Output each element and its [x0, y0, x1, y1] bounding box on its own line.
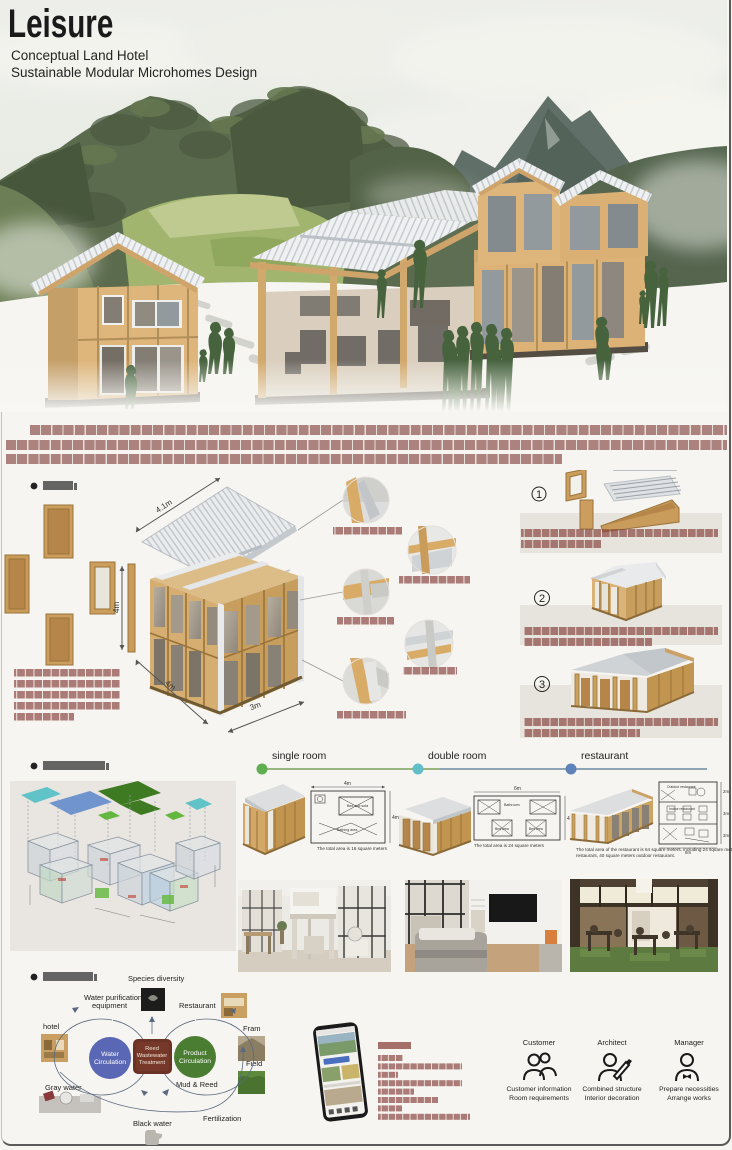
svg-text:Restaurant: Restaurant: [179, 1001, 217, 1010]
svg-text:The total area is 24 square me: The total area is 24 square meters: [474, 843, 545, 848]
svg-text:Room requirements: Room requirements: [509, 1095, 569, 1102]
svg-text:2: 2: [539, 593, 545, 605]
svg-text:Customer: Customer: [523, 1038, 556, 1047]
svg-text:double room: double room: [428, 750, 487, 762]
svg-text:restaurant, 40 square meters o: restaurant, 40 square meters outdoor res…: [576, 853, 675, 858]
svg-text:4m: 4m: [392, 815, 399, 821]
svg-text:3m: 3m: [723, 811, 729, 816]
svg-text:Species diversity: Species diversity: [128, 974, 185, 983]
svg-text:2m: 2m: [723, 789, 729, 794]
svg-text:equipment: equipment: [92, 1001, 128, 1010]
svg-text:Fram: Fram: [243, 1024, 261, 1033]
svg-text:Fertilization: Fertilization: [203, 1114, 241, 1123]
svg-text:single room: single room: [272, 750, 327, 762]
svg-text:Arrange works: Arrange works: [667, 1095, 711, 1102]
svg-text:hotel: hotel: [43, 1022, 60, 1031]
svg-text:Architect: Architect: [597, 1038, 627, 1047]
svg-text:Interior decoration: Interior decoration: [585, 1095, 640, 1102]
svg-text:6m: 6m: [514, 786, 521, 792]
svg-text:Bed area: Bed area: [495, 827, 509, 831]
svg-text:3: 3: [539, 679, 545, 691]
svg-text:Treatment: Treatment: [139, 1060, 166, 1066]
svg-text:Circulation: Circulation: [179, 1058, 211, 1065]
svg-text:Water: Water: [101, 1051, 120, 1058]
svg-text:Bed area: Bed area: [529, 827, 543, 831]
svg-text:Outdoor restaurant: Outdoor restaurant: [667, 785, 696, 789]
svg-text:Product: Product: [183, 1050, 207, 1057]
svg-text:Prepare necessities: Prepare necessities: [659, 1086, 719, 1093]
svg-text:1: 1: [536, 489, 542, 501]
svg-text:3m: 3m: [248, 700, 262, 713]
svg-text:Wastewater: Wastewater: [137, 1053, 167, 1059]
svg-text:3m: 3m: [723, 833, 729, 838]
svg-text:The total area of the restaura: The total area of the restaurant is 64 s…: [576, 847, 732, 852]
svg-text:Black water: Black water: [133, 1119, 172, 1128]
svg-text:The total area is 16 square me: The total area is 16 square meters: [317, 846, 388, 851]
svg-text:Bathroom: Bathroom: [504, 803, 520, 807]
svg-text:restaurant: restaurant: [581, 750, 628, 762]
svg-text:Combined structure: Combined structure: [582, 1086, 642, 1093]
svg-text:Manager: Manager: [674, 1038, 704, 1047]
svg-text:4m: 4m: [112, 602, 121, 613]
svg-text:Customer information: Customer information: [507, 1086, 572, 1093]
svg-text:Circulation: Circulation: [94, 1059, 126, 1066]
svg-text:4.1m: 4.1m: [154, 497, 174, 514]
svg-text:Bathing area: Bathing area: [337, 828, 357, 832]
svg-text:Gray water: Gray water: [45, 1083, 82, 1092]
svg-text:4m: 4m: [344, 781, 351, 787]
svg-text:Bed and sofa: Bed and sofa: [347, 804, 368, 808]
svg-text:Mud & Reed: Mud & Reed: [176, 1080, 218, 1089]
svg-text:Reed: Reed: [145, 1046, 159, 1052]
